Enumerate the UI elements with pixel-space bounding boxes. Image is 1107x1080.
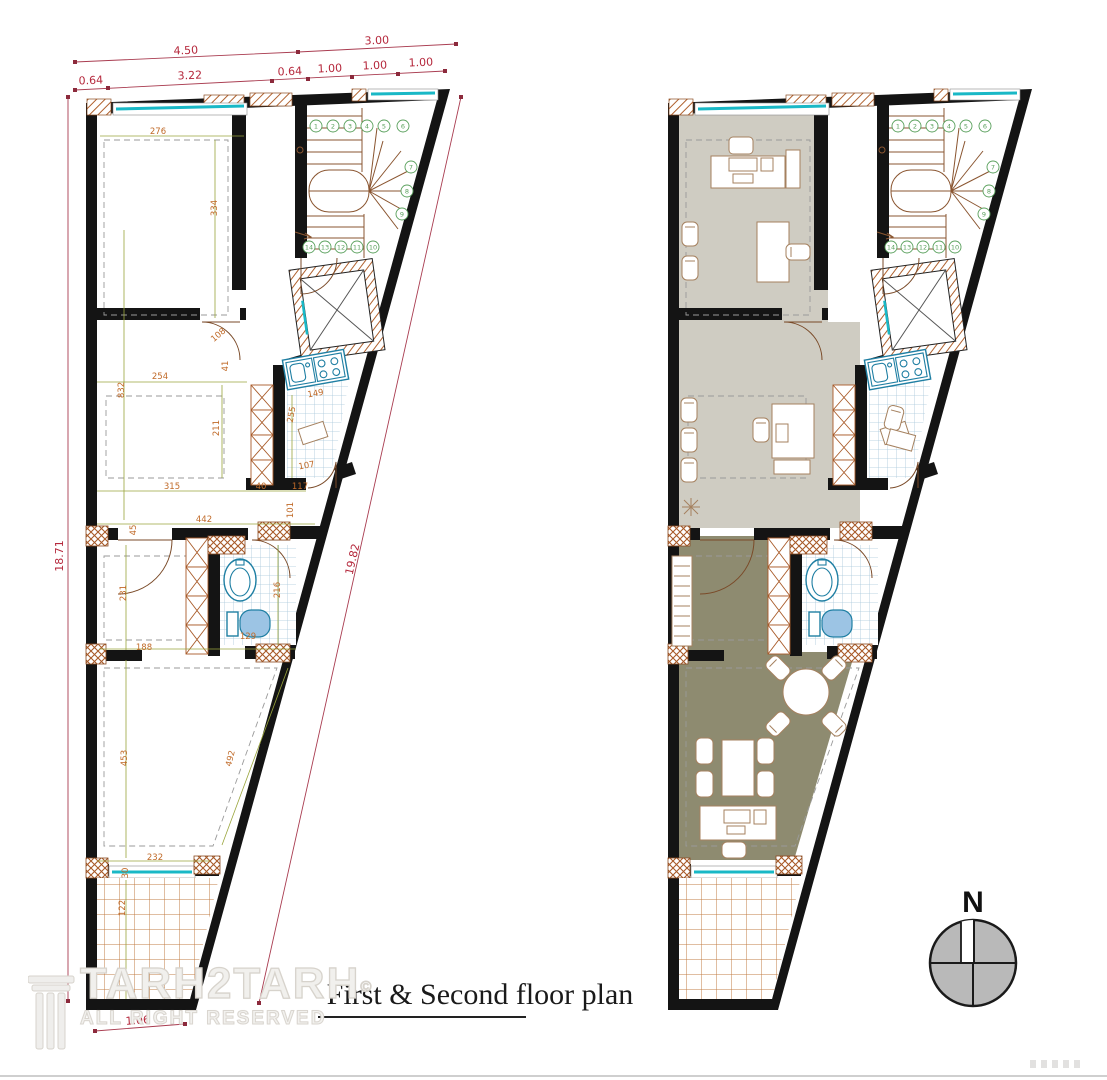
dim-label: 232 (147, 853, 163, 863)
floor-plan-drawing: 4.50 3.00 0.64 3.22 0.64 1.00 1.00 1.00 … (0, 0, 1107, 1080)
dim-label: 216 (273, 582, 283, 598)
watermark-copyright: © (360, 979, 371, 996)
dimension-marker (459, 95, 463, 99)
corner-mark (1030, 1060, 1082, 1068)
stair-step-number: 5 (382, 122, 386, 130)
stair-step-number: 9 (400, 210, 404, 218)
office-chair (729, 137, 753, 154)
dim-label: 231 (119, 585, 129, 601)
dim-label: 129 (240, 632, 256, 642)
dim-label: 40 (256, 482, 267, 492)
dimension-marker (396, 72, 400, 76)
dimension-marker (296, 50, 300, 54)
dim-label: 1.00 (362, 58, 387, 72)
stair-step-number: 6 (401, 122, 405, 130)
stair-step-number: 4 (365, 122, 369, 130)
dim-label: 30 (121, 868, 131, 879)
column-logo-icon (28, 962, 76, 1062)
stair-step-number: 7 (991, 163, 995, 171)
dim-label: 41 (221, 361, 231, 372)
stair-step-number: 13 (321, 243, 329, 251)
left-plan-shell (86, 89, 450, 1010)
watermark-name: TARH2TARH (80, 959, 360, 1008)
dim-label: 0.64 (277, 64, 302, 78)
stair-step-number: 10 (369, 243, 377, 251)
stair-step-number: 3 (348, 122, 352, 130)
logo-watermark: TARH2TARH© ALL RIGHT RESERVED (28, 962, 371, 1062)
dim-label: 108 (209, 326, 228, 344)
dim-label: 1.00 (408, 55, 433, 69)
stair-step-number: 1 (896, 122, 900, 130)
dim-label: 117 (292, 482, 308, 492)
armchair (696, 771, 713, 797)
dim-label: 334 (210, 200, 220, 216)
plant (682, 498, 700, 516)
stair-step-number: 13 (903, 243, 911, 251)
dimension-marker (106, 86, 110, 90)
stair-step-number: 8 (405, 187, 409, 195)
dimension-marker (443, 69, 447, 73)
stair-step-number: 14 (887, 243, 895, 251)
stair-step-number: 3 (930, 122, 934, 130)
coffee-table (722, 740, 754, 796)
chair (682, 256, 698, 280)
sheet-border-line (0, 1075, 1107, 1077)
credenza (774, 460, 810, 474)
dim-label: 0.64 (78, 73, 103, 87)
stair-step-number: 7 (409, 163, 413, 171)
computer-monitor (776, 424, 788, 442)
stair-step-number: 10 (951, 243, 959, 251)
stair-step-number: 8 (987, 187, 991, 195)
stair-step-number: 12 (337, 243, 345, 251)
keyboard (727, 826, 745, 834)
stair-step-number: 11 (353, 243, 361, 251)
stair-step-number: 6 (983, 122, 987, 130)
dim-label: 18.71 (53, 540, 66, 572)
north-compass: N (930, 886, 1016, 1006)
dimension-marker (454, 42, 458, 46)
dim-label: 453 (120, 750, 130, 766)
dimension-marker (73, 88, 77, 92)
armchair (696, 738, 713, 764)
computer-monitor (724, 810, 750, 823)
chair (681, 458, 697, 482)
dim-label: 211 (212, 420, 222, 436)
dim-label: 492 (224, 750, 237, 768)
dimension-marker (66, 95, 70, 99)
cpu-tower (761, 158, 773, 171)
cabinet (786, 150, 800, 188)
dim-label: 45 (129, 525, 139, 536)
dim-label: 4.50 (173, 43, 198, 57)
stair-step-number: 1 (314, 122, 318, 130)
stair-step-number: 11 (935, 243, 943, 251)
dim-label: 442 (196, 515, 212, 525)
dimension-marker (73, 60, 77, 64)
floor-plan-sheet: 4.50 3.00 0.64 3.22 0.64 1.00 1.00 1.00 … (0, 0, 1107, 1080)
dimension-marker (350, 75, 354, 79)
stair-step-number: 9 (982, 210, 986, 218)
stair-step-number: 2 (331, 122, 335, 130)
dim-label: 832 (117, 382, 127, 398)
stair-step-number: 4 (947, 122, 951, 130)
cpu-tower (754, 810, 766, 824)
desk-chair (722, 842, 746, 858)
wardrobe (672, 556, 692, 646)
chair (681, 428, 697, 452)
stair-step-number: 2 (913, 122, 917, 130)
dimension-marker (306, 77, 310, 81)
chair (786, 244, 810, 260)
armchair (757, 771, 774, 797)
dim-label: 101 (286, 502, 296, 518)
stair-step-number: 14 (305, 243, 313, 251)
dimension-marker (270, 79, 274, 83)
dim-label: 188 (136, 643, 152, 653)
watermark-subtitle: ALL RIGHT RESERVED (80, 1008, 371, 1030)
dim-label: 3.00 (364, 33, 389, 47)
dim-label: 1.00 (317, 61, 342, 75)
dim-label: 122 (118, 900, 128, 916)
north-label: N (962, 886, 984, 919)
keyboard (733, 174, 753, 183)
armchair (757, 738, 774, 764)
chair (682, 222, 698, 246)
north-needle (961, 918, 974, 963)
stair-step-number: 5 (964, 122, 968, 130)
dim-label: 3.22 (177, 68, 202, 82)
dining-table (783, 669, 829, 715)
stair-step-number: 12 (919, 243, 927, 251)
computer-monitor (729, 158, 757, 171)
dim-label: 315 (164, 482, 180, 492)
chair (681, 398, 697, 422)
dim-label: 276 (150, 127, 166, 137)
dim-label: 19.82 (343, 542, 363, 576)
chair (753, 418, 769, 442)
meeting-table (757, 222, 789, 282)
dim-label: 254 (152, 372, 168, 382)
